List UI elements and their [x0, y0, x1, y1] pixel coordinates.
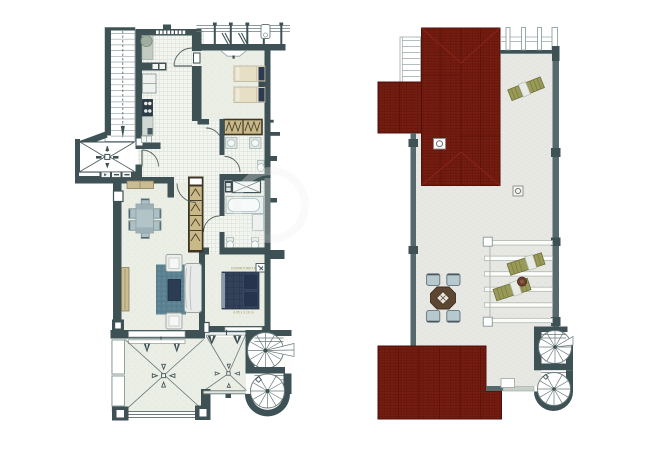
svg-text:4.05 x 3.10 m: 4.05 x 3.10 m: [233, 311, 254, 315]
